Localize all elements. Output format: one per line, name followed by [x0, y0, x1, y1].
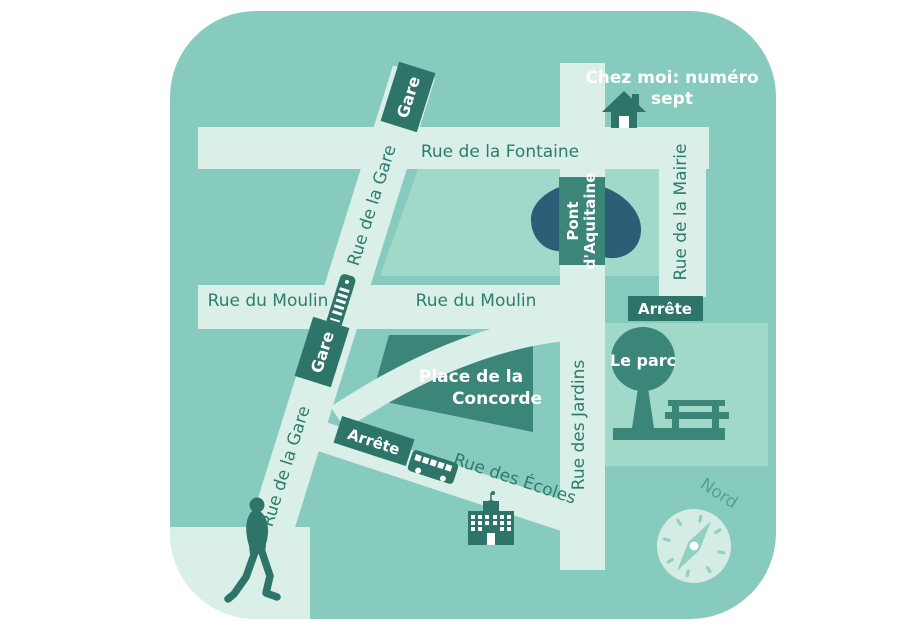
- park-ground: [613, 428, 725, 440]
- french-town-map: Le parc Pont d'Aquitaine Gare Gare Arrêt…: [0, 0, 922, 640]
- arrete-parc-label: Arrête: [638, 300, 692, 318]
- place-label-line1: Place de la: [419, 367, 523, 387]
- label-rue-du-moulin-left: Rue du Moulin: [208, 291, 329, 311]
- svg-text:d'Aquitaine: d'Aquitaine: [581, 173, 599, 270]
- compass-icon: [657, 509, 731, 583]
- park-label: Le parc: [610, 351, 676, 370]
- place-label-line2: Concorde: [452, 389, 542, 409]
- home-note-line1: Chez moi: numéro: [585, 68, 758, 88]
- label-rue-de-la-mairie: Rue de la Mairie: [671, 144, 691, 281]
- svg-text:Pont: Pont: [564, 201, 582, 240]
- label-rue-de-la-fontaine: Rue de la Fontaine: [421, 142, 579, 162]
- label-rue-du-moulin-right: Rue du Moulin: [416, 291, 537, 311]
- home-note-line2: sept: [651, 89, 693, 109]
- map-canvas: Le parc Pont d'Aquitaine Gare Gare Arrêt…: [0, 0, 922, 640]
- label-rue-des-jardins: Rue des Jardins: [569, 360, 589, 491]
